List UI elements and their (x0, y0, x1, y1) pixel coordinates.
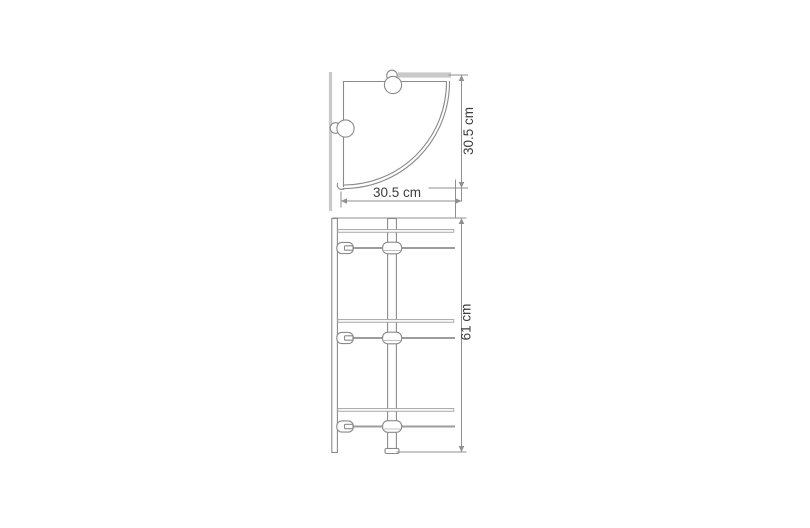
pole-connector (383, 242, 402, 254)
wall-clip-slot (345, 336, 354, 340)
glass-shelf-edge (338, 409, 454, 412)
shelf-curve-inner (344, 82, 447, 185)
drawing-canvas: 30.5 cm 30.5 cm (0, 0, 810, 528)
wall-strip (332, 219, 338, 453)
wall-clip-slot (345, 424, 354, 428)
glass-shelf-edge (338, 230, 454, 233)
arrow-down-icon (459, 446, 465, 452)
left-mount-post (337, 120, 354, 137)
glass-shelf-edge (338, 320, 454, 323)
arrow-left-icon (341, 198, 347, 204)
pole-bottom-flange (385, 449, 399, 454)
dimension-label-depth: 30.5 cm (461, 107, 476, 155)
front-view-dimensions: 61 cm (397, 218, 474, 452)
shelf-curve-outer (343, 82, 450, 189)
pole-connector (383, 421, 402, 433)
front-view (332, 218, 466, 454)
top-view-dimensions: 30.5 cm 30.5 cm (341, 75, 476, 218)
top-mount-post (384, 76, 401, 93)
arrow-down-icon (459, 182, 465, 188)
arrow-up-icon (459, 75, 465, 81)
wall-clip-slot (345, 246, 354, 250)
pole-connector (383, 332, 402, 344)
corner-shelf-dimension-diagram: 30.5 cm 30.5 cm (0, 0, 810, 528)
arrow-right-icon (456, 198, 462, 204)
dimension-label-width: 30.5 cm (373, 185, 421, 200)
dimension-label-height: 61 cm (459, 304, 474, 341)
arrow-up-icon (459, 218, 465, 224)
